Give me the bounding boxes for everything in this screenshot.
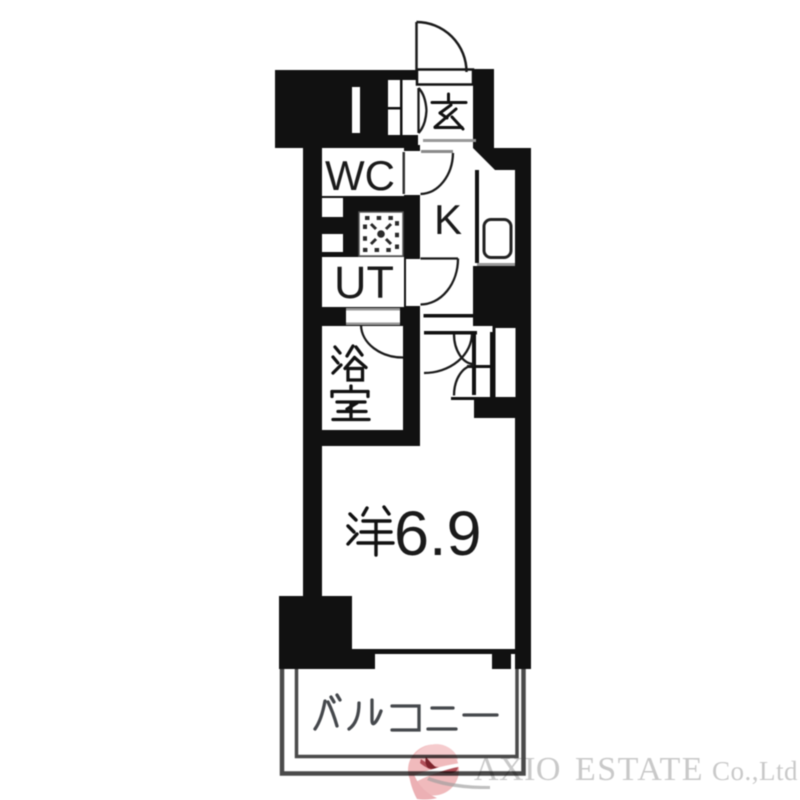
svg-text:AXIO: AXIO (474, 751, 561, 788)
svg-text:ESTATE: ESTATE (575, 751, 704, 788)
svg-text:UT: UT (334, 257, 394, 308)
svg-text:K: K (434, 196, 462, 243)
svg-text:Co.,Ltd: Co.,Ltd (712, 756, 798, 786)
svg-text:WC: WC (325, 152, 395, 199)
svg-text:6.9: 6.9 (394, 499, 482, 569)
